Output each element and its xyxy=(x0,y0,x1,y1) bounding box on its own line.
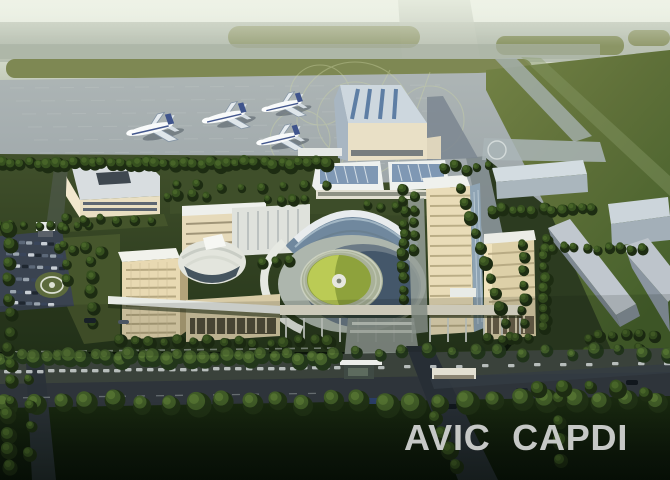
svg-text:AVIC CAPDI: AVIC CAPDI xyxy=(404,417,628,458)
